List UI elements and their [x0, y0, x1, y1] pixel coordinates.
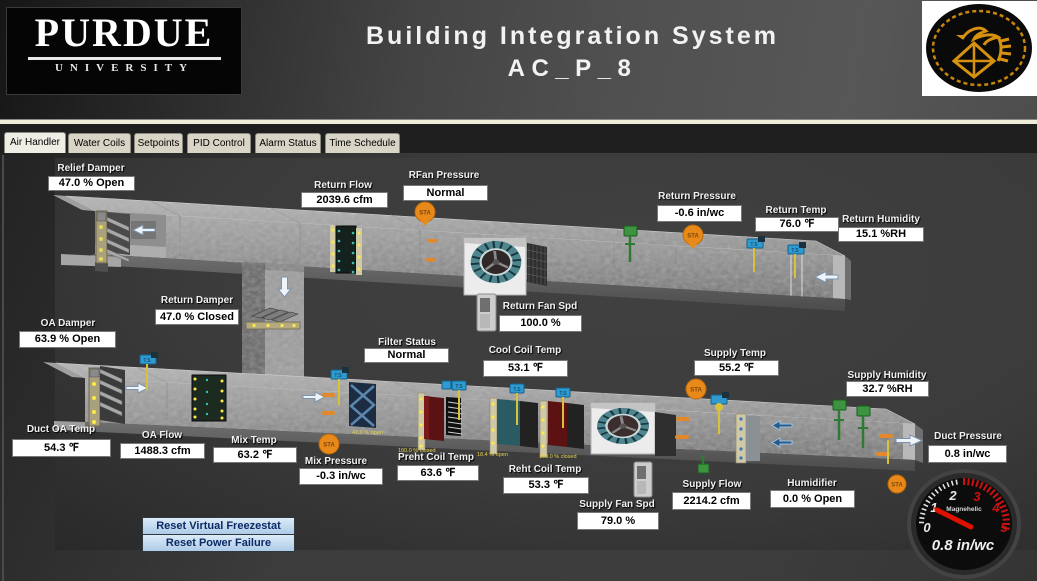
svg-text:T.S: T.S: [455, 384, 463, 390]
svg-text:Magnehelic: Magnehelic: [946, 506, 982, 513]
svg-text:T.S: T.S: [143, 358, 151, 364]
svg-text:2: 2: [948, 488, 957, 503]
svg-text:T.S: T.S: [791, 248, 799, 254]
svg-text:0: 0: [923, 520, 931, 535]
svg-text:18.4 % open: 18.4 % open: [477, 452, 508, 458]
svg-text:100.0 % closed: 100.0 % closed: [539, 454, 577, 460]
svg-text:STA: STA: [323, 443, 335, 449]
svg-text:4: 4: [991, 500, 1000, 515]
svg-text:T.S: T.S: [513, 387, 521, 393]
svg-text:47.0 % open: 47.0 % open: [352, 430, 383, 436]
svg-text:T.S: T.S: [750, 242, 758, 248]
svg-text:0.8 in/wc: 0.8 in/wc: [932, 537, 995, 554]
svg-text:STA: STA: [687, 234, 699, 240]
svg-text:STA: STA: [419, 211, 431, 217]
svg-text:5: 5: [1000, 520, 1008, 535]
svg-text:3: 3: [973, 489, 981, 504]
svg-text:STA: STA: [690, 388, 702, 394]
svg-text:T.S: T.S: [334, 373, 342, 379]
svg-text:T.S: T.S: [559, 391, 567, 397]
svg-text:STA: STA: [891, 483, 903, 489]
